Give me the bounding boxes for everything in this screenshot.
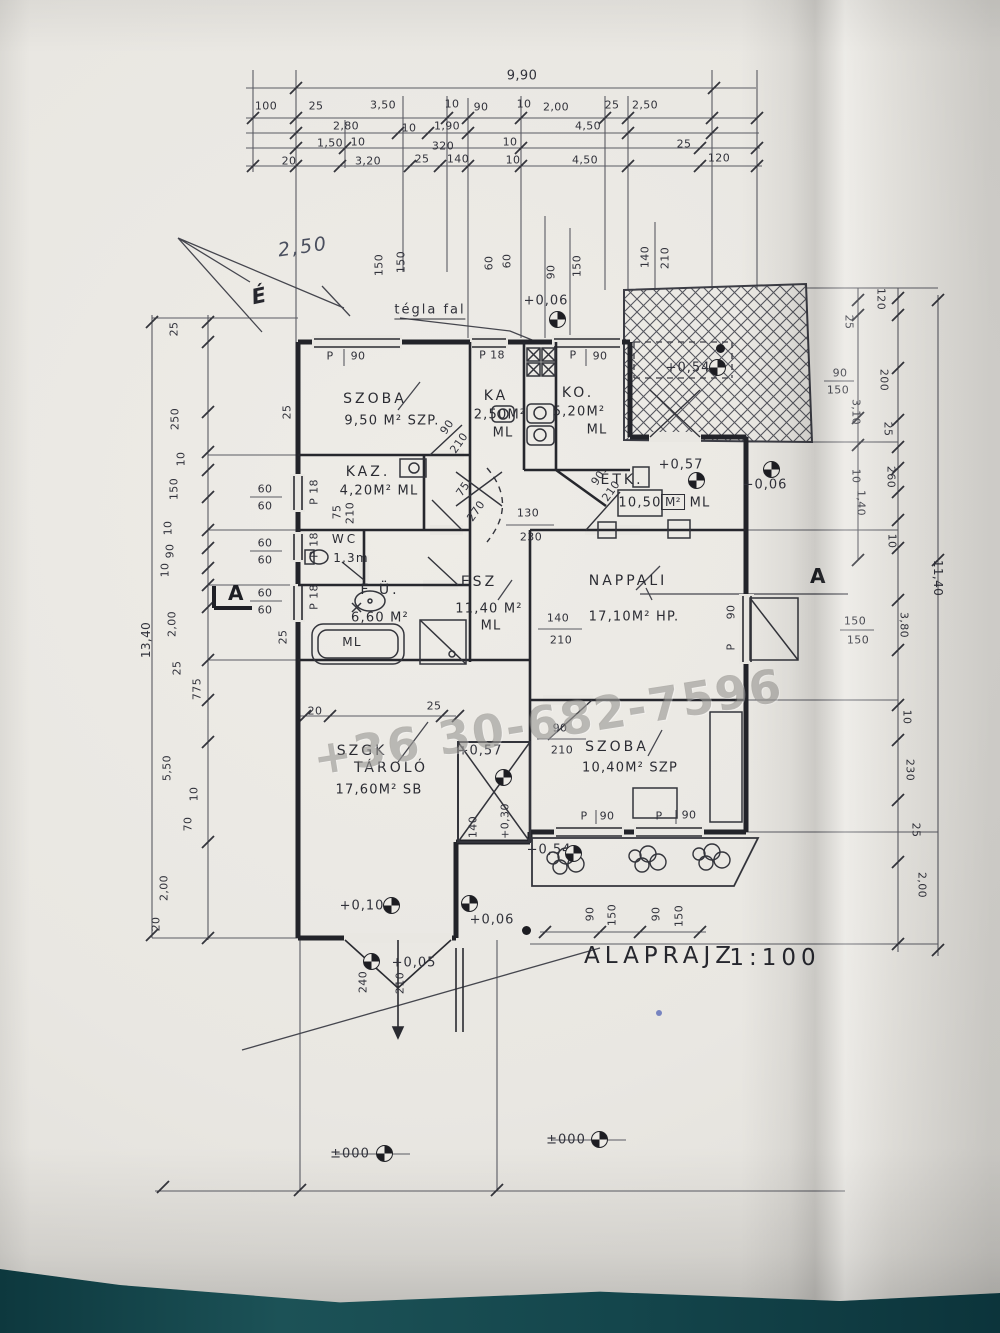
drawing-title: ALAPRAJZ [584, 943, 736, 969]
benchmark-icon [376, 1145, 393, 1162]
room-area-wc: 1,3m [333, 551, 369, 565]
dim-label: 10 [351, 136, 366, 149]
room-name-ko: KO. [562, 385, 594, 401]
room-area-szoba1: 9,50 M² SZP. [344, 414, 439, 429]
dim-label: 250 [169, 408, 182, 430]
room-code-ko: ML [587, 423, 608, 438]
window-label: P 18 [479, 349, 505, 362]
door-label: 90 [725, 605, 738, 620]
dim-label: 2,00 [166, 611, 179, 637]
dim-label: 70 [182, 817, 195, 832]
dim-label: 2,50 [632, 99, 658, 112]
watermark-phone: +36 30-682-7596 [309, 658, 786, 786]
photo-of-floorplan: 9,90 100 25 3,50 10 90 10 2,00 25 2,50 2… [0, 0, 1000, 1333]
dim-label: 150 [847, 634, 869, 647]
dim-total-width: 9,90 [507, 69, 538, 84]
dim-label: 150 [395, 251, 408, 273]
room-code-ka: ML [493, 426, 514, 441]
room-area-nappali: 17,10M² HP. [589, 610, 680, 625]
dim-label: 200 [878, 369, 891, 391]
window-label: P 18 [308, 532, 321, 558]
dim-label: 10 [445, 98, 460, 111]
room-name-wc: WC [332, 532, 358, 546]
door-dim: 210 [550, 634, 572, 647]
dim-label: 25 [882, 422, 895, 437]
window-label: 90 [600, 810, 615, 823]
dim-label: 210 [659, 247, 672, 269]
door-dim: 210 [447, 430, 470, 456]
dim-label: 10 [850, 469, 863, 484]
room-name-szoba1: SZOBA [343, 391, 407, 407]
room-name-kaz: KAZ. [346, 464, 391, 480]
dim-label: 25 [843, 315, 856, 330]
dim-label: 25 [281, 405, 294, 420]
dim-label: 10 [175, 452, 188, 467]
room-name-fu: F Ü. [360, 582, 399, 598]
benchmark-icon [495, 769, 512, 786]
elevation-label: +0,54 [666, 361, 711, 376]
dim-label: 60 [483, 256, 496, 271]
section-mark-a-left: A [228, 581, 244, 605]
plan-linework [0, 0, 1000, 1333]
dim-label: 150 [571, 255, 584, 277]
benchmark-icon [709, 359, 726, 376]
dim-label: 90 [164, 544, 177, 559]
door-dim: 270 [464, 498, 487, 524]
room-area-esz: 11,40 M² [455, 602, 522, 617]
elevation-label: +0,06 [524, 294, 569, 309]
dim-label: 150 [606, 904, 619, 926]
door-dim: 130 [517, 507, 539, 520]
dim-label: 10 [517, 98, 532, 111]
dim-label: 10 [159, 563, 172, 578]
door-dim: 230 [520, 531, 542, 544]
dim-label: 775 [191, 678, 204, 700]
dim-total-height-left: 13,40 [139, 622, 153, 658]
door-dim: 210 [394, 972, 407, 994]
elevation-label: +0,06 [743, 478, 788, 493]
dim-label: 20 [150, 917, 163, 932]
dim-label: 3,10 [850, 399, 863, 425]
dim-label: 20 [308, 705, 323, 718]
window-label: P [326, 350, 333, 363]
room-area-ka: 2,50M² [474, 408, 527, 423]
room-code-etk: ML [690, 496, 711, 511]
dim-label: 60 [258, 500, 273, 513]
dim-label: 4,50 [575, 120, 601, 133]
room-area-kaz: 4,20M² ML [340, 484, 419, 499]
dim-label: 90 [545, 265, 558, 280]
dim-label: 60 [258, 537, 273, 550]
dim-label: 60 [258, 483, 273, 496]
survey-dot [716, 344, 725, 353]
door-label: P [725, 643, 738, 650]
paper-sheet: 9,90 100 25 3,50 10 90 10 2,00 25 2,50 2… [0, 0, 1000, 1333]
dim-label: 120 [708, 152, 730, 165]
dim-label: 10 [188, 787, 201, 802]
dim-label: 60 [501, 254, 514, 269]
window-label: P [655, 810, 662, 823]
dim-label: 140 [447, 153, 469, 166]
benchmark-icon [383, 897, 400, 914]
dim-label: 320 [432, 140, 454, 153]
dim-label: 10 [901, 710, 914, 725]
benchmark-icon [549, 311, 566, 328]
dim-label: 60 [258, 554, 273, 567]
room-area-fu: 6,60 M² [351, 611, 409, 626]
dim-label: 2,00 [543, 101, 569, 114]
north-arrow-label: É [249, 283, 268, 310]
window-label: P [580, 810, 587, 823]
dim-label: 260 [885, 466, 898, 488]
benchmark-icon [763, 461, 780, 478]
room-area-szoba2: 10,40M² SZP [582, 761, 678, 776]
window-label: P [569, 349, 576, 362]
section-mark-a-right: A [810, 564, 826, 588]
room-name-nappali: NAPPALI [589, 573, 668, 589]
dim-label: 150 [373, 254, 386, 276]
dim-label: 1,90 [434, 120, 460, 133]
tub-label: ML [342, 635, 361, 649]
window-label: P 18 [308, 479, 321, 505]
dim-label: 140 [467, 816, 480, 838]
dim-label: 25 [309, 100, 324, 113]
drawing-scale: 1:100 [729, 945, 820, 971]
dim-label: 2,00 [916, 872, 929, 898]
handwritten-note: 2,50 [277, 233, 330, 262]
dim-label: 90 [650, 907, 663, 922]
elevation-label: +0,06 [470, 913, 515, 928]
elevation-label: +0,57 [659, 458, 704, 473]
room-name-esz: ESZ [461, 574, 497, 590]
window-label: P 18 [308, 584, 321, 610]
dim-label: 10 [886, 534, 899, 549]
dim-label: 4,50 [572, 154, 598, 167]
room-area-szgk: 17,60M² SB [336, 783, 423, 798]
dim-label: 5,50 [161, 755, 174, 781]
wall-note: tégla fal [394, 303, 465, 320]
dim-label: 60 [258, 587, 273, 600]
elevation-label: +0,10 [340, 899, 385, 914]
dim-label: 2,80 [333, 120, 359, 133]
door-dim: 75 [453, 479, 472, 499]
dim-label: 25 [910, 823, 923, 838]
dim-label: 90 [474, 101, 489, 114]
dimension-lines [152, 70, 938, 1191]
dim-label: 10 [506, 154, 521, 167]
window-label: 90 [593, 350, 608, 363]
dim-label: 10 [503, 136, 518, 149]
dim-label: 25 [415, 153, 430, 166]
dim-label: 140 [639, 246, 652, 268]
survey-dot [522, 926, 531, 935]
door-dim: 210 [344, 502, 357, 524]
dim-label: 150 [827, 384, 849, 397]
ink-dot [656, 1010, 662, 1016]
dim-label: 150 [673, 905, 686, 927]
dim-label: 3,20 [355, 155, 381, 168]
door-dim: 75 [331, 505, 344, 520]
dim-label: 150 [168, 478, 181, 500]
dim-label: 230 [904, 759, 917, 781]
benchmark-icon [461, 895, 478, 912]
benchmark-icon [591, 1131, 608, 1148]
paper-shading [0, 0, 1000, 1333]
dim-label: 2,00 [158, 875, 171, 901]
dim-label: 150 [844, 615, 866, 628]
elevation-label: +0,05 [392, 956, 437, 971]
benchmark-icon [565, 845, 582, 862]
dim-label: 3,50 [370, 99, 396, 112]
dim-label: 20 [282, 155, 297, 168]
dim-label: 90 [833, 367, 848, 380]
dim-label: 1,40 [855, 490, 868, 516]
dim-label: 10 [162, 521, 175, 536]
room-code-esz: ML [481, 619, 502, 634]
elevation-label: ±000 [330, 1147, 370, 1162]
dim-label: 3,80 [898, 612, 911, 638]
door-dim: 140 [547, 612, 569, 625]
dim-label: 25 [427, 700, 442, 713]
elevation-label: ±000 [546, 1133, 586, 1148]
dim-label: 60 [258, 604, 273, 617]
room-unit-etk: M² [661, 494, 685, 510]
window-label: 90 [682, 809, 697, 822]
dim-label: 100 [255, 100, 277, 113]
dim-label: 25 [171, 661, 184, 676]
dim-label: 90 [584, 907, 597, 922]
room-area-etk: 10,50 [618, 496, 661, 511]
dim-total-height-right: 11,40 [931, 560, 945, 596]
dim-label: 25 [605, 99, 620, 112]
door-dim: 90 [437, 417, 456, 437]
dim-label: 25 [168, 322, 181, 337]
door-dim: 240 [357, 971, 370, 993]
room-area-ko: 5,20M² [553, 405, 606, 420]
dim-label: 1,50 [317, 137, 343, 150]
dim-label: 25 [677, 138, 692, 151]
elevation-label: +0,30 [499, 803, 512, 839]
dim-label: 25 [277, 630, 290, 645]
window-label: 90 [351, 350, 366, 363]
benchmark-icon [688, 472, 705, 489]
room-name-ka: KA [484, 388, 509, 404]
benchmark-icon [363, 953, 380, 970]
dim-label: 10 [402, 122, 417, 135]
dim-label: 120 [875, 288, 888, 310]
outer-walls [298, 342, 746, 938]
dimension-ticks [146, 82, 944, 1196]
